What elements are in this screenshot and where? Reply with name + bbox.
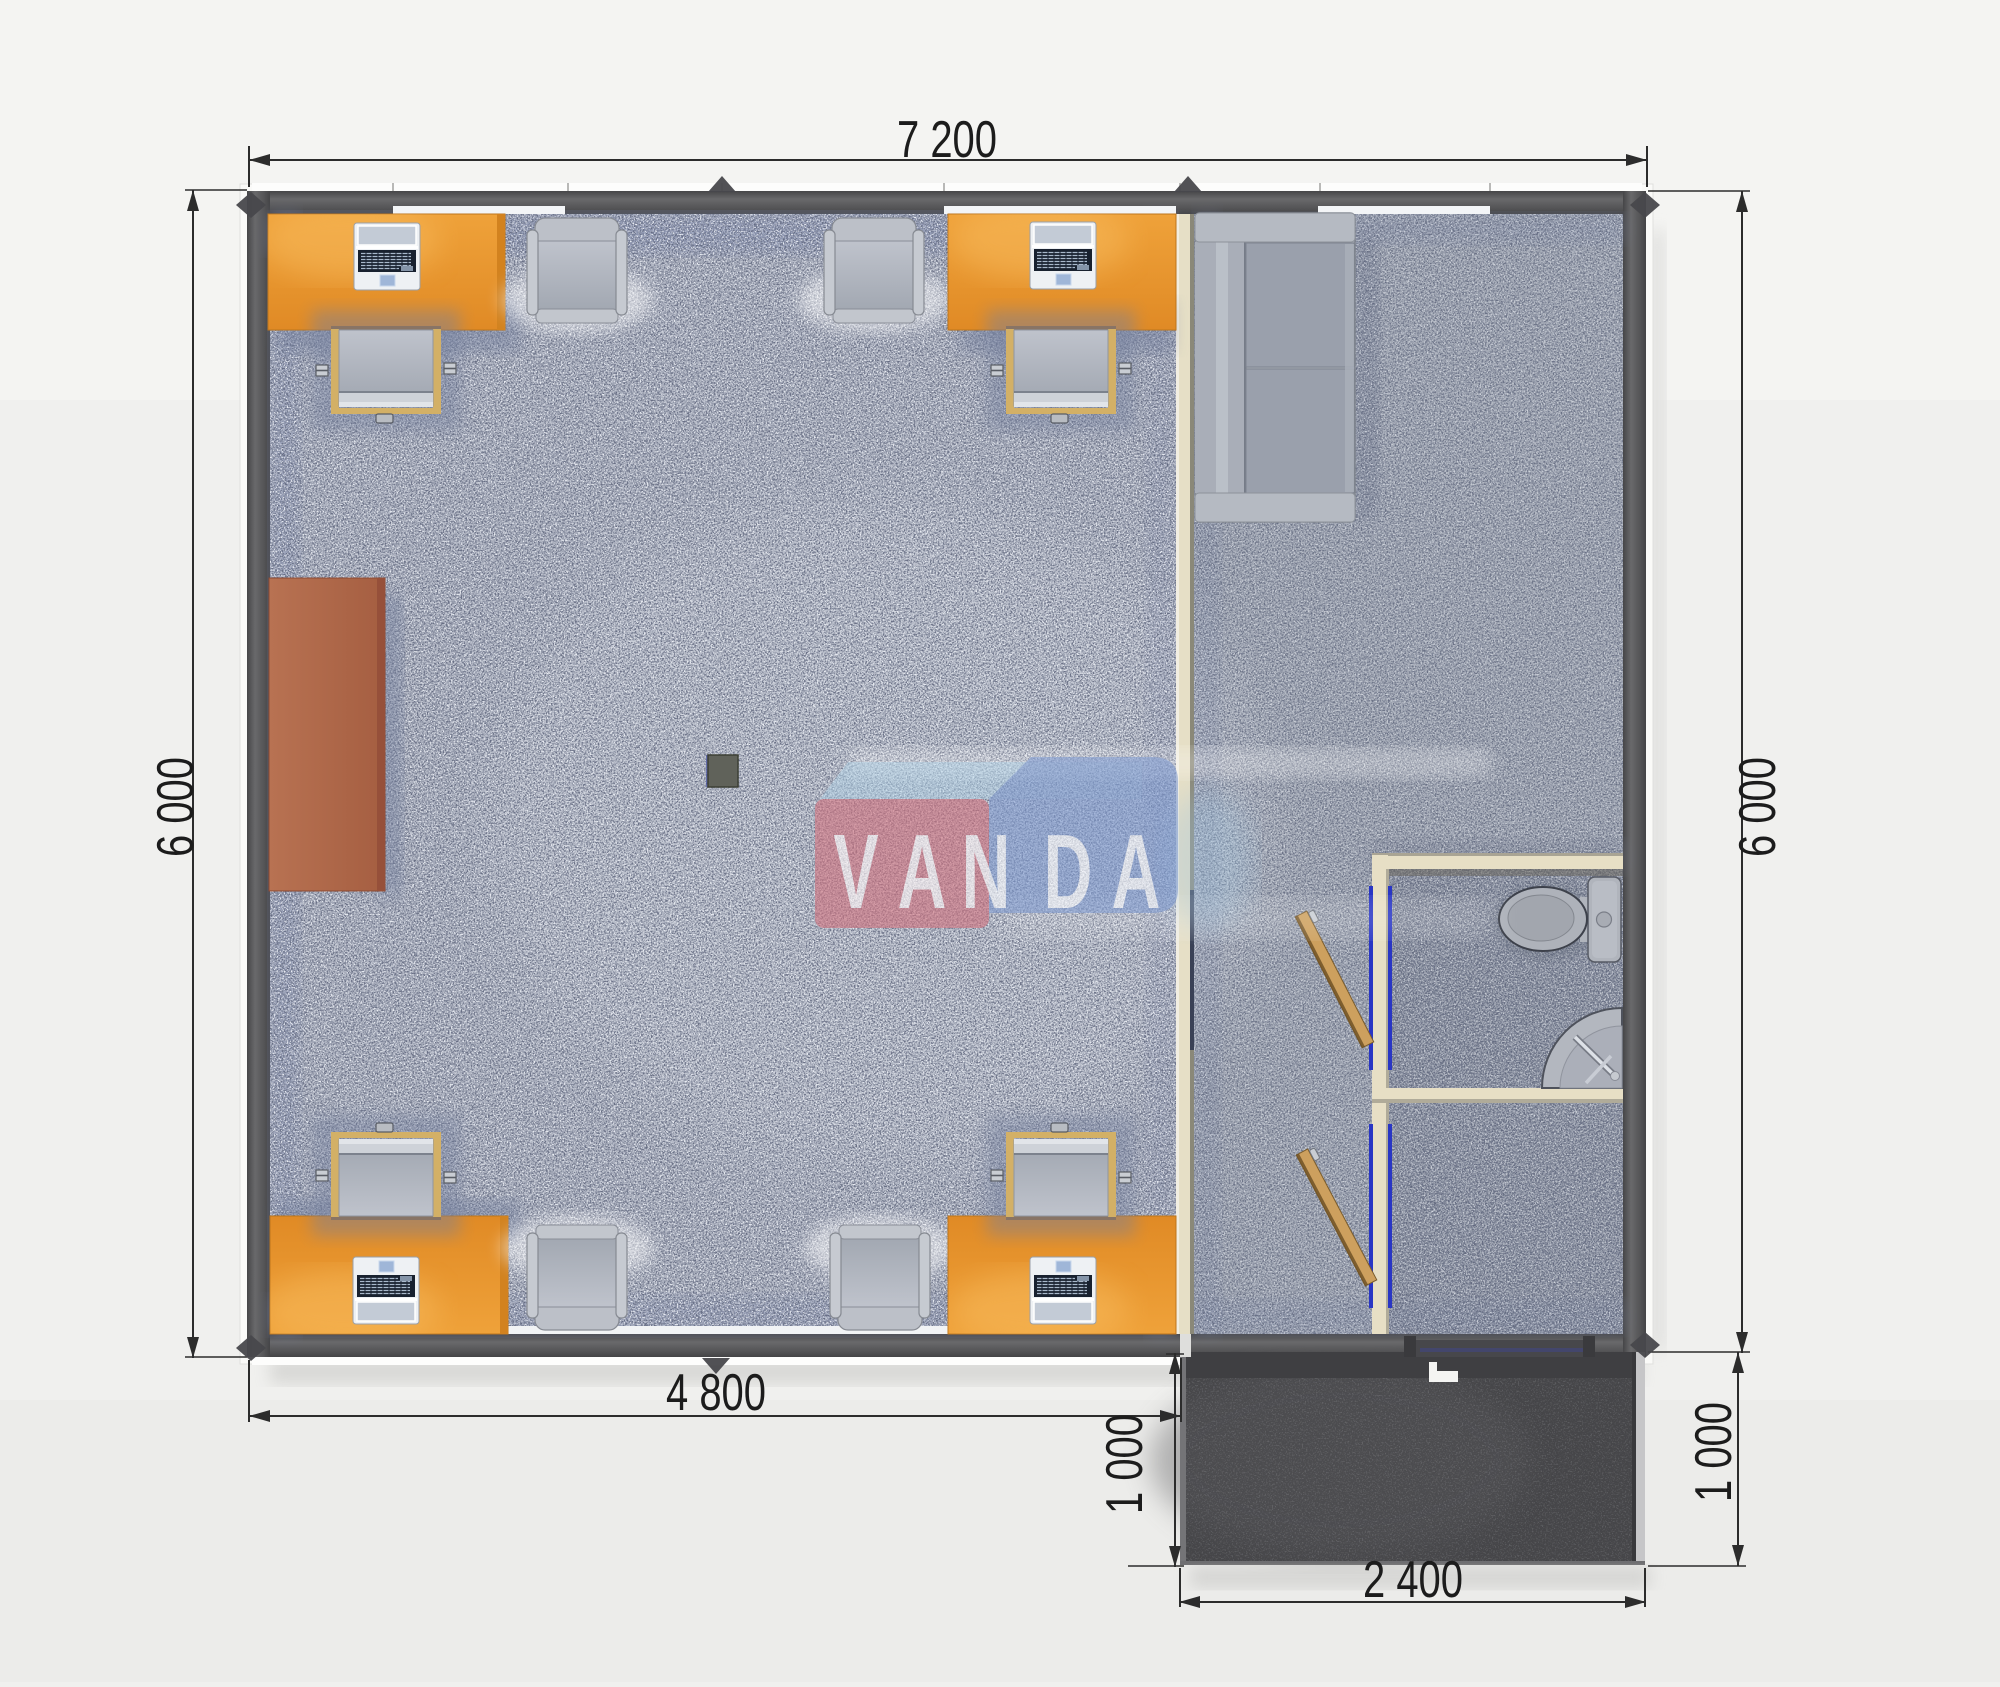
svg-text:4 800: 4 800 [666,1364,766,1422]
svg-text:A: A [1112,812,1161,931]
svg-text:1 000: 1 000 [1096,1414,1154,1514]
svg-text:A: A [898,812,947,931]
svg-text:D: D [1044,812,1093,931]
svg-text:N: N [962,812,1011,931]
svg-text:6 000: 6 000 [1729,757,1787,857]
svg-text:7 200: 7 200 [897,111,997,169]
svg-text:6 000: 6 000 [147,757,205,857]
svg-text:V: V [833,812,878,931]
svg-text:2 400: 2 400 [1363,1551,1463,1609]
svg-text:1 000: 1 000 [1685,1402,1743,1502]
